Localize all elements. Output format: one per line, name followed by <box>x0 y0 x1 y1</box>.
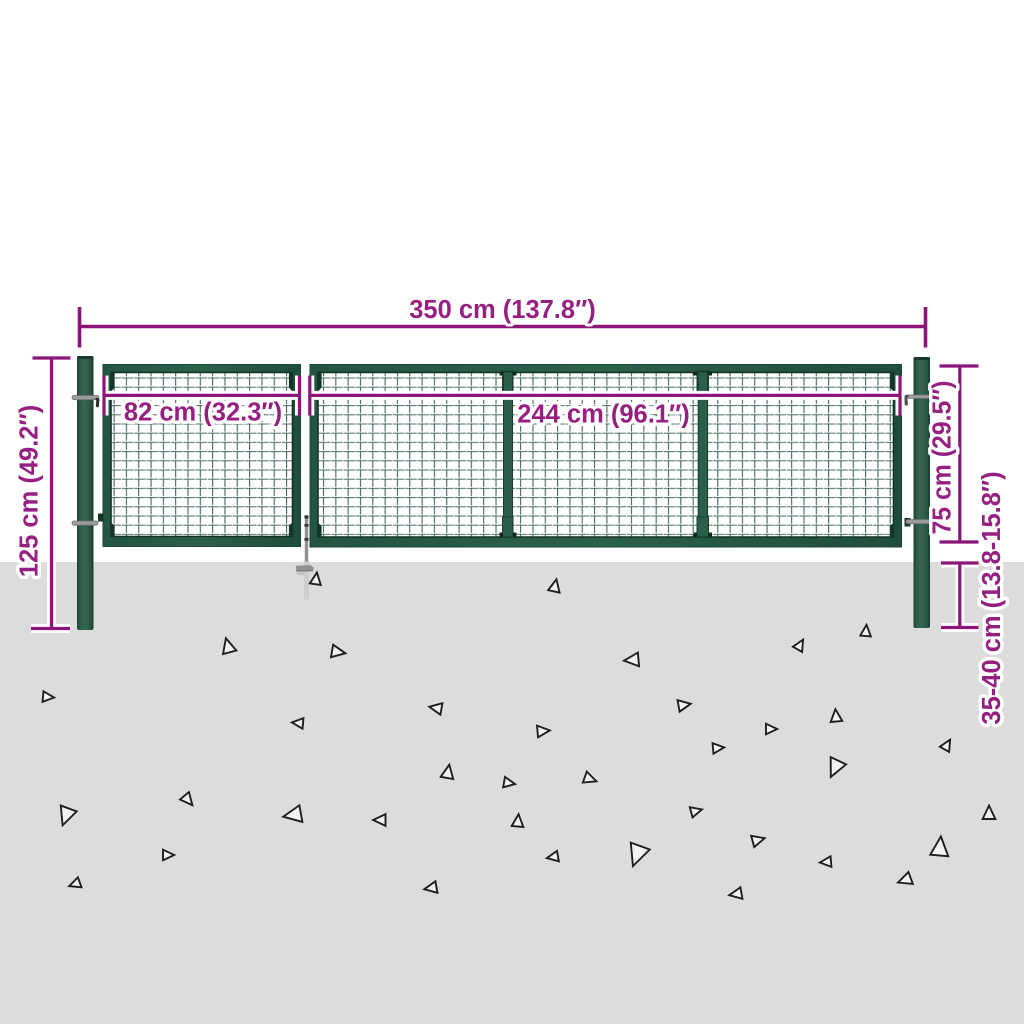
svg-text:244 cm (96.1″): 244 cm (96.1″) <box>517 401 689 429</box>
svg-text:82 cm (32.3″): 82 cm (32.3″) <box>124 399 282 427</box>
svg-text:125 cm (49.2″): 125 cm (49.2″) <box>16 405 44 577</box>
svg-text:75 cm (29.5″): 75 cm (29.5″) <box>929 381 957 535</box>
svg-text:350 cm (137.8″): 350 cm (137.8″) <box>409 296 596 324</box>
svg-text:35-40 cm (13.8-15.8″): 35-40 cm (13.8-15.8″) <box>978 471 1006 724</box>
